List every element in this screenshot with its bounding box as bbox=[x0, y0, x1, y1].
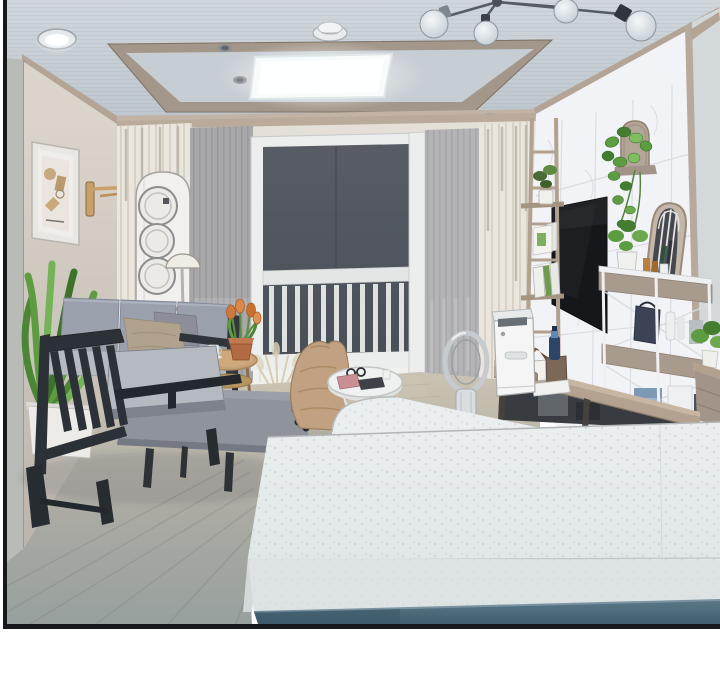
air-purifier bbox=[492, 309, 535, 396]
room-illustration bbox=[0, 0, 720, 700]
recessed-downlight bbox=[35, 29, 79, 54]
kitchen-island bbox=[243, 422, 720, 624]
speaker-driver-icon bbox=[139, 187, 177, 294]
led-panel-light bbox=[217, 40, 427, 112]
webtoon-panel bbox=[0, 0, 720, 700]
window bbox=[251, 133, 421, 371]
shelf-books bbox=[533, 262, 560, 298]
tray-ceiling bbox=[108, 40, 552, 112]
pink-pouch bbox=[337, 374, 360, 389]
picture-frame bbox=[32, 142, 79, 245]
balcony-railing bbox=[263, 267, 409, 352]
